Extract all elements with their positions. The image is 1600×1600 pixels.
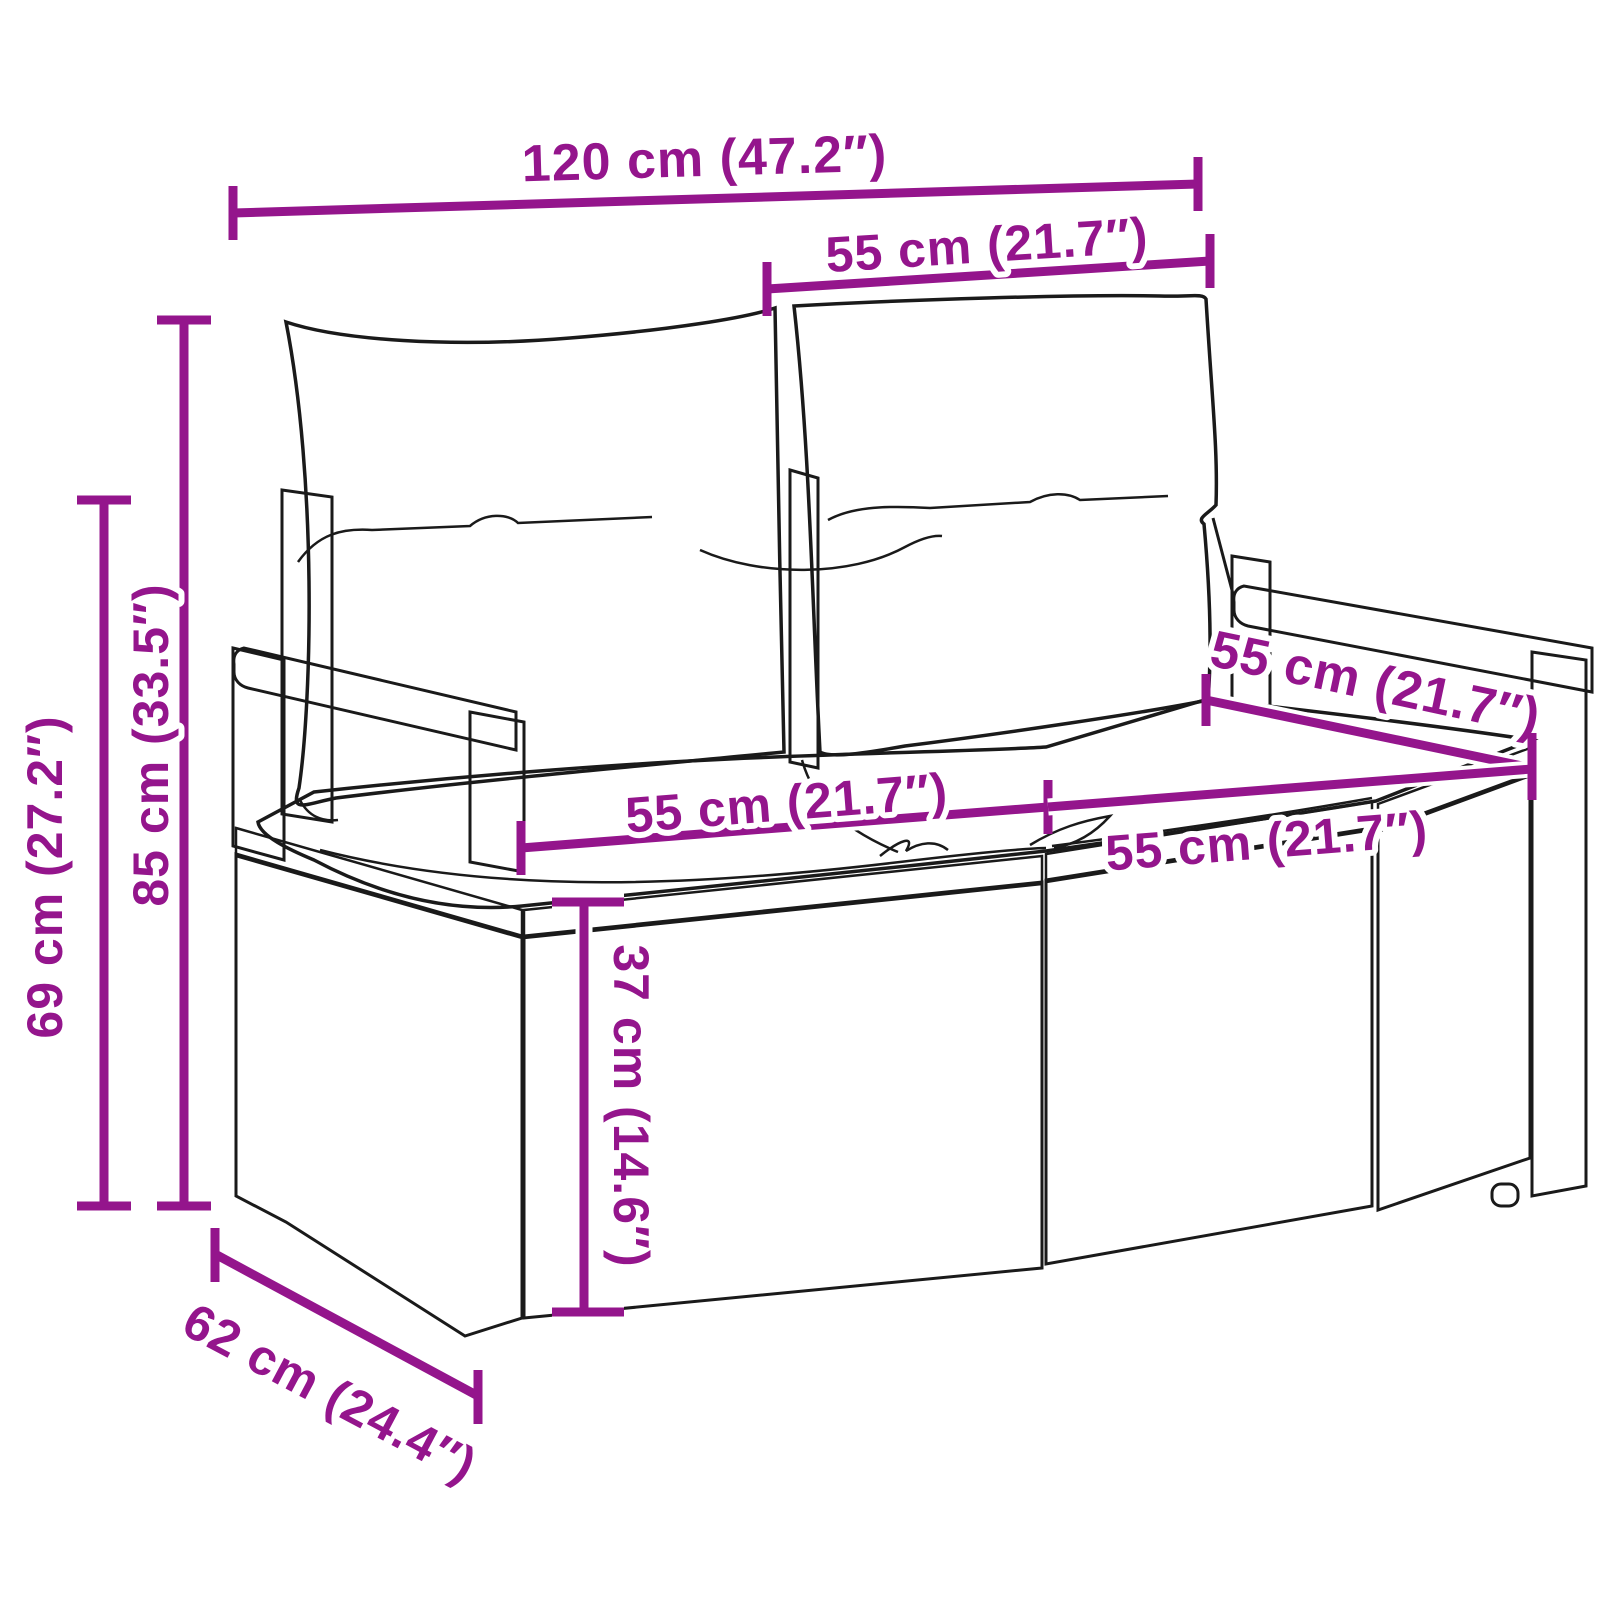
dim-total-height: 85 cm (33.5″) bbox=[123, 320, 211, 1206]
base-panel-front-right bbox=[1046, 828, 1372, 1264]
dim-seat-height-label: 37 cm (14.6″) bbox=[603, 944, 659, 1267]
dim-seat-height: 37 cm (14.6″) bbox=[552, 902, 659, 1312]
diagram-canvas: 120 cm (47.2″) 55 cm (21.7″) 85 cm (33.5… bbox=[0, 0, 1600, 1600]
bench-leg bbox=[1492, 1184, 1518, 1206]
dim-frame-height: 69 cm (27.2″) bbox=[17, 500, 131, 1206]
dimension-annotations: 120 cm (47.2″) 55 cm (21.7″) 85 cm (33.5… bbox=[17, 125, 1546, 1494]
base-panel-front-left bbox=[524, 882, 1042, 1318]
dim-overall-depth: 62 cm (24.4″) bbox=[174, 1228, 486, 1494]
dim-frame-height-label: 69 cm (27.2″) bbox=[17, 715, 73, 1038]
back-cushion-left bbox=[286, 308, 784, 820]
right-arm-column bbox=[1532, 652, 1586, 1196]
dim-overall-width-label: 120 cm (47.2″) bbox=[521, 125, 888, 194]
dim-seat-width-right-label: 55 cm (21.7″) bbox=[1103, 800, 1430, 881]
dim-total-height-label: 85 cm (33.5″) bbox=[123, 583, 179, 906]
dim-seat-depth: 55 cm (21.7″) bbox=[1205, 620, 1545, 768]
right-frame-edge bbox=[1213, 518, 1233, 594]
left-armrest-rail bbox=[234, 648, 516, 750]
product-dimension-diagram: 120 cm (47.2″) 55 cm (21.7″) 85 cm (33.5… bbox=[0, 0, 1600, 1600]
